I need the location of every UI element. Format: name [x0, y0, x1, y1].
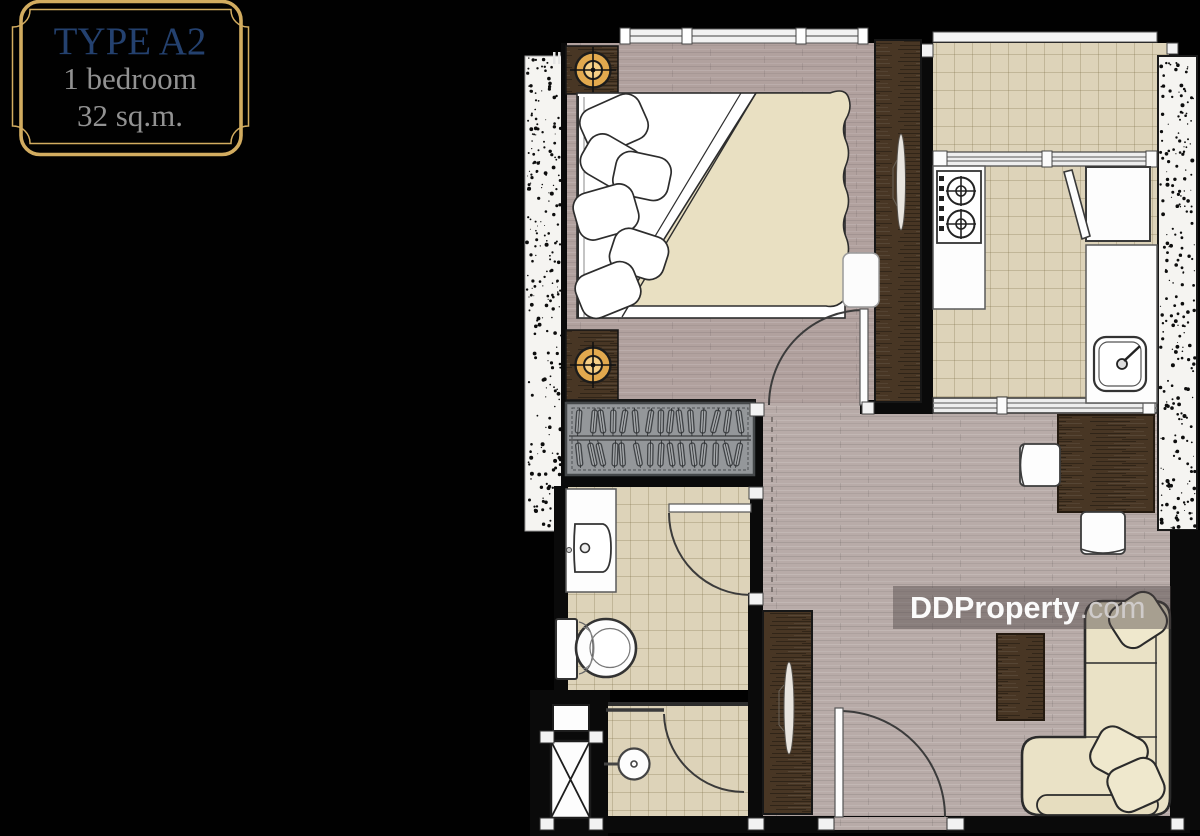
svg-text:TYPE A2: TYPE A2	[54, 20, 207, 63]
svg-text:1 bedroom: 1 bedroom	[63, 61, 196, 96]
svg-text:DDProperty.com: DDProperty.com	[910, 591, 1146, 625]
svg-text:32 sq.m.: 32 sq.m.	[77, 98, 183, 133]
